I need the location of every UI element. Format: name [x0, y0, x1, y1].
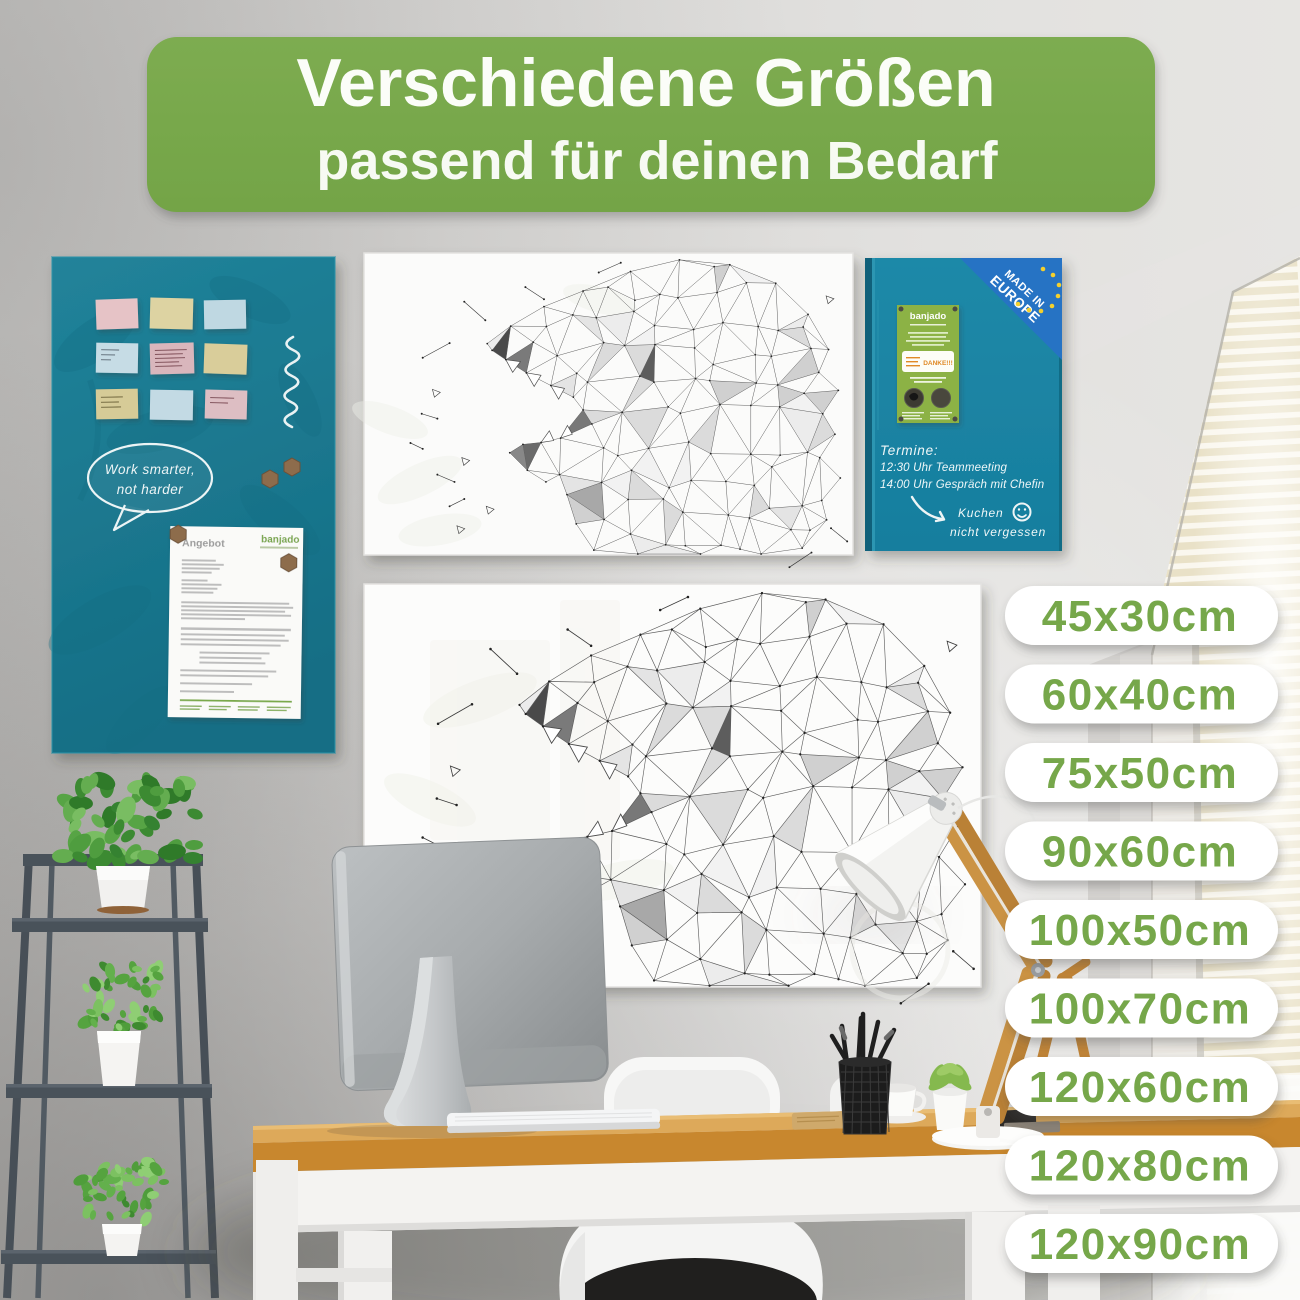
svg-text:Kuchen: Kuchen: [958, 506, 1004, 520]
svg-text:75x50cm: 75x50cm: [1042, 749, 1238, 798]
svg-text:Work smarter,: Work smarter,: [105, 462, 196, 477]
svg-text:100x70cm: 100x70cm: [1029, 985, 1251, 1034]
svg-text:120x90cm: 120x90cm: [1029, 1220, 1251, 1269]
svg-text:120x80cm: 120x80cm: [1029, 1142, 1251, 1191]
svg-text:not harder: not harder: [117, 482, 184, 497]
svg-text:nicht vergessen: nicht vergessen: [950, 525, 1046, 539]
svg-text:Verschiedene Größen: Verschiedene Größen: [296, 45, 995, 121]
svg-text:banjado: banjado: [910, 311, 947, 322]
svg-text:45x30cm: 45x30cm: [1042, 592, 1238, 641]
svg-text:Termine:: Termine:: [880, 443, 938, 458]
svg-text:12:30 Uhr Teammeeting: 12:30 Uhr Teammeeting: [880, 462, 1008, 474]
svg-text:14:00 Uhr Gespräch mit Chefin: 14:00 Uhr Gespräch mit Chefin: [880, 479, 1044, 491]
svg-text:60x40cm: 60x40cm: [1042, 671, 1238, 720]
svg-text:DANKE!!!: DANKE!!!: [923, 360, 953, 367]
svg-text:banjado: banjado: [261, 534, 299, 546]
svg-text:passend für deinen Bedarf: passend für deinen Bedarf: [316, 131, 998, 191]
svg-text:120x60cm: 120x60cm: [1029, 1063, 1251, 1112]
svg-text:Angebot: Angebot: [182, 537, 225, 550]
svg-text:100x50cm: 100x50cm: [1029, 906, 1251, 955]
svg-text:90x60cm: 90x60cm: [1042, 828, 1238, 877]
